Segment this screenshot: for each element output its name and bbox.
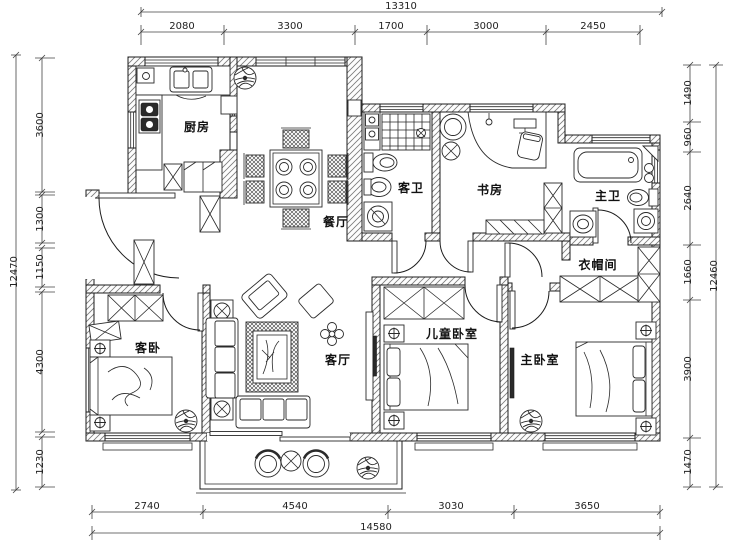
room-label-guest-bath: 客卫	[397, 180, 424, 195]
ottoman	[298, 283, 335, 319]
nightstand	[90, 340, 110, 357]
room-guest-bath: 客卫	[364, 112, 430, 231]
dim-top-seg: 1700	[378, 21, 403, 32]
guest-bedroom-door	[163, 293, 203, 331]
plant-icon	[175, 410, 197, 432]
master-bath-door	[593, 208, 631, 243]
dimension-chain-bottom: 2740 4540 3030 3650 14580	[89, 501, 663, 540]
refrigerator	[184, 162, 222, 192]
dim-left-seg: 4300	[35, 349, 46, 374]
room-label-living: 客厅	[324, 352, 351, 367]
room-master-bedroom: 主卧室	[510, 322, 656, 435]
kitchen-side-window	[128, 112, 136, 148]
washbasin	[364, 178, 391, 197]
dim-left-seg: 1150	[35, 254, 46, 279]
room-kids-bedroom: 儿童卧室	[384, 287, 478, 429]
dim-top-seg: 2080	[169, 21, 194, 32]
room-closet: 衣帽间	[560, 247, 660, 302]
dim-right-seg: 3900	[683, 356, 694, 381]
dim-right-seg: 960	[683, 127, 694, 146]
dim-left-seg: 1230	[35, 449, 46, 474]
nightstand	[384, 325, 404, 342]
kids-bedroom-window	[417, 433, 491, 441]
balcony	[103, 441, 637, 493]
master-bedroom-door	[510, 291, 549, 329]
room-label-kids-bedroom: 儿童卧室	[425, 326, 478, 341]
room-master-bath: 主卫	[570, 146, 658, 237]
wall-niche	[348, 100, 361, 116]
toilet	[364, 153, 397, 172]
entry-door	[85, 193, 179, 279]
wicker-chair	[303, 451, 329, 478]
ball-chair	[440, 114, 466, 160]
dim-right-seg: 1490	[683, 80, 694, 105]
closet-wardrobe	[560, 247, 660, 302]
nightstand	[636, 418, 656, 435]
kitchen-stove	[139, 100, 160, 133]
dim-right-seg: 2640	[683, 185, 694, 210]
sofa	[206, 318, 238, 398]
dim-bottom-seg: 3030	[438, 501, 463, 512]
guest-bath-door	[392, 241, 426, 273]
armchair	[240, 272, 288, 319]
dim-left-seg: 1300	[35, 206, 46, 231]
wardrobe	[108, 295, 163, 321]
room-label-master-bedroom: 主卧室	[520, 352, 559, 367]
vanity-basin	[570, 211, 596, 237]
dim-bottom-total: 14580	[360, 522, 392, 533]
room-label-closet: 衣帽间	[578, 257, 617, 272]
washbasin	[634, 209, 658, 233]
guest-bath-window	[380, 104, 423, 112]
dim-left-seg: 3600	[35, 112, 46, 137]
dimension-chain-top: 13310 2080 3300 1700 3000 2450	[138, 1, 665, 45]
room-dining: 餐厅	[221, 67, 349, 229]
dim-top-seg: 3300	[277, 21, 302, 32]
radiator	[221, 96, 237, 114]
master-bedroom-window	[545, 433, 635, 441]
floor-plan-page: 厨房 餐厅 客卫 书房	[0, 0, 740, 555]
nightstand	[384, 412, 404, 429]
nightstand	[90, 414, 110, 431]
room-study: 书房	[440, 112, 562, 234]
room-label-dining: 餐厅	[323, 214, 349, 229]
kitchen-corner-sink	[137, 68, 154, 83]
dining-table	[270, 150, 322, 207]
dim-bottom-seg: 4540	[282, 501, 307, 512]
dim-right-seg: 1470	[683, 449, 694, 474]
nightstand	[636, 322, 656, 339]
hall-door	[505, 243, 542, 277]
plant-icon	[234, 67, 256, 89]
dining-window	[256, 57, 345, 66]
room-label-guest-bedroom: 客卧	[134, 340, 161, 355]
bath-cabinet	[364, 112, 380, 150]
room-guest-bedroom: 客卧	[89, 295, 197, 432]
kitchen-cabinet	[164, 164, 182, 190]
toilet	[628, 189, 659, 206]
shower	[382, 114, 430, 150]
dimension-chain-left: 12470 3600 1300 1150 4300 1230	[9, 52, 55, 493]
dim-left-total: 12470	[9, 256, 20, 288]
hall-cabinet	[200, 196, 220, 232]
wicker-chair	[255, 451, 281, 478]
dimension-chain-right: 1490 960 2640 1660 3900 1470 12460	[683, 62, 723, 490]
dim-top-seg: 3000	[473, 21, 498, 32]
room-label-master-bath: 主卫	[595, 188, 621, 203]
dim-right-seg: 1660	[683, 259, 694, 284]
master-bed	[576, 342, 652, 416]
master-bath-window	[592, 135, 650, 143]
study-window	[470, 104, 533, 112]
floor-plan-drawing: 厨房 餐厅 客卫 书房	[0, 0, 740, 555]
guest-bedroom-window	[105, 433, 190, 441]
dim-top-total: 13310	[385, 1, 417, 12]
bathtub	[574, 148, 642, 182]
window-ledge	[415, 443, 493, 450]
window-ledge	[543, 443, 637, 450]
study-door	[440, 241, 473, 272]
dim-bottom-seg: 2740	[134, 501, 159, 512]
shoe-cabinet	[134, 240, 154, 284]
kitchen-window	[145, 57, 218, 66]
dim-right-total: 12460	[709, 260, 720, 292]
kids-bed	[384, 344, 468, 410]
room-label-kitchen: 厨房	[184, 119, 210, 134]
dim-top-seg: 2450	[580, 21, 605, 32]
balcony-table	[281, 451, 301, 471]
window-ledge	[103, 443, 192, 450]
desk-chair	[517, 131, 544, 161]
flower-decor	[321, 323, 344, 346]
tv	[510, 348, 514, 398]
side-table	[211, 398, 233, 420]
room-label-study: 书房	[477, 182, 503, 197]
kids-bedroom-door	[465, 285, 502, 322]
rug	[246, 322, 298, 392]
room-kitchen: 厨房	[134, 66, 230, 284]
washing-machine	[364, 202, 392, 231]
dim-bottom-seg: 3650	[574, 501, 599, 512]
sofa-2	[236, 396, 310, 428]
wardrobe	[384, 287, 464, 319]
plant-icon	[520, 410, 542, 432]
balcony-sliding-door	[207, 432, 350, 442]
plant-icon	[357, 457, 379, 479]
room-living: 客厅	[206, 272, 377, 428]
guest-bed	[90, 357, 172, 415]
